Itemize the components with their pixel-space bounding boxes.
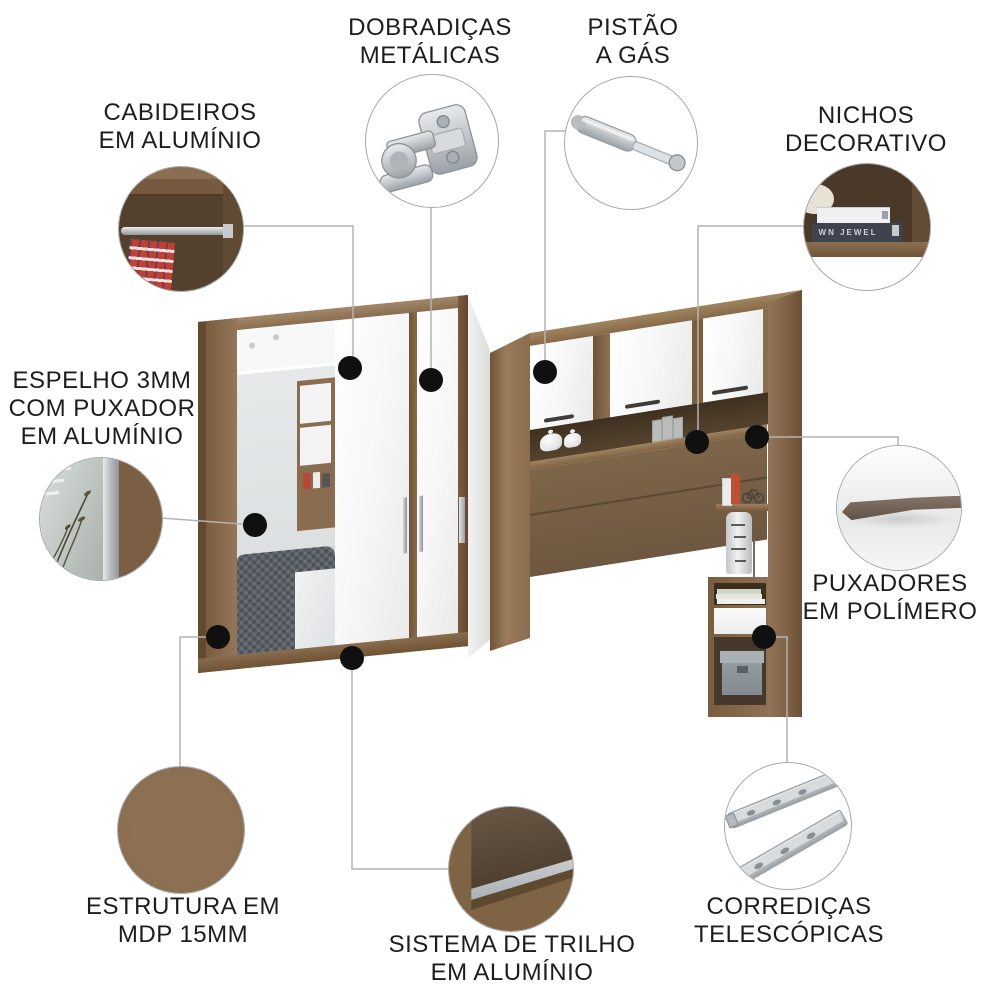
puxadores-circle: [836, 445, 962, 571]
white-book: [817, 207, 890, 224]
aluminum-door-handle: [419, 496, 423, 552]
white-hinged-door-right: [417, 308, 458, 637]
reflected-shelf-item: [303, 473, 311, 490]
book-label: [882, 211, 888, 219]
gas-piston-image: [565, 77, 697, 209]
label-line: COM PUXADOR: [0, 395, 204, 423]
cabideiros-circle: [118, 166, 244, 292]
decorative-niche-image: WN JEWEL: [804, 164, 930, 290]
dobradicas-circle: [365, 74, 499, 208]
label-pistao: PISTÃO A GÁS: [533, 14, 733, 70]
plaid-garment: [126, 240, 175, 292]
callout-point-cabideiros: [338, 356, 362, 380]
label-line: METÁLICAS: [310, 42, 550, 70]
sistema-circle: [448, 806, 574, 932]
label-espelho: ESPELHO 3MM COM PUXADOR EM ALUMÍNIO: [0, 367, 204, 451]
label-line: PUXADORES: [780, 570, 1000, 598]
door-wood-edge: [119, 458, 162, 580]
callout-point-pistao: [533, 360, 557, 384]
corner-post: [490, 333, 530, 651]
label-line: SISTEMA DE TRILHO: [377, 931, 647, 959]
label-line: NICHOS: [746, 102, 986, 130]
aluminum-hanging-rod-image: [119, 167, 243, 291]
telescopic-slides-image: [725, 763, 851, 889]
label-line: CORREDIÇAS: [669, 893, 909, 921]
glass-cup: [673, 417, 683, 440]
canister-stripe: [734, 536, 746, 538]
canister-stripe: [735, 560, 746, 562]
wardrobe-front-section: [198, 295, 468, 673]
corner-door: [468, 296, 490, 658]
storage-box: [722, 651, 762, 695]
callout-point-nichos: [685, 430, 709, 454]
bicycle-figurine: [741, 481, 765, 505]
nichos-circle: WN JEWEL: [803, 163, 931, 291]
label-line: EM POLÍMERO: [780, 598, 1000, 626]
corredicas-circle: [724, 762, 852, 890]
aluminum-track-image: [449, 807, 573, 931]
label-puxadores: PUXADORES EM POLÍMERO: [780, 570, 1000, 626]
metal-hinge-image: [366, 75, 498, 207]
espelho-circle: [39, 457, 163, 581]
dark-book: WN JEWEL: [812, 223, 903, 242]
reflected-shelf-item: [322, 473, 330, 488]
aluminum-handle-strip: [103, 458, 119, 580]
book-label: [892, 225, 899, 236]
book-spine-text: WN JEWEL: [812, 228, 878, 237]
tower-open-niche: [714, 583, 766, 605]
label-line: ESPELHO 3MM: [0, 367, 204, 395]
callout-point-sistema: [340, 646, 364, 670]
label-line: TELESCÓPICAS: [669, 921, 909, 949]
storage-box-lid: [720, 651, 764, 663]
label-cabideiros: CABIDEIROS EM ALUMÍNIO: [60, 99, 300, 155]
reflected-shelf-item: [313, 472, 320, 489]
storage-box-latch: [737, 666, 748, 673]
connector-sistema: [352, 658, 448, 869]
wardrobe-left-stile: [206, 318, 237, 672]
vignette: [118, 767, 244, 893]
label-estrutura: ESTRUTURA EM MDP 15MM: [63, 893, 303, 949]
label-line: EM ALUMÍNIO: [377, 959, 647, 987]
glass-cup: [662, 415, 673, 441]
estrutura-circle: [117, 766, 245, 894]
label-line: CABIDEIROS: [60, 99, 300, 127]
wardrobe-features-infographic: WN JEWEL: [0, 0, 1000, 1000]
polymer-handle-image: [837, 446, 961, 570]
mirror-surface: [40, 458, 103, 580]
label-corredicas: CORREDIÇAS TELESCÓPICAS: [669, 893, 909, 949]
label-nichos: NICHOS DECORATIVO: [746, 102, 986, 158]
aluminum-rod: [121, 227, 225, 236]
label-line: PISTÃO: [533, 14, 733, 42]
label-line: DECORATIVO: [746, 130, 986, 158]
reflected-white-door: [300, 425, 331, 466]
red-book: [731, 474, 740, 504]
callout-point-dobradicas: [419, 368, 443, 392]
label-line: ESTRUTURA EM: [63, 893, 303, 921]
canister: [726, 512, 752, 574]
niche-shelf: [804, 242, 930, 257]
door-divider: [409, 312, 417, 638]
reflected-white-door: [300, 383, 331, 424]
label-line: MDP 15MM: [63, 921, 303, 949]
glass-cup: [652, 419, 662, 443]
callout-point-puxadores: [745, 425, 769, 449]
label-line: EM ALUMÍNIO: [60, 127, 300, 155]
pistao-circle: [564, 76, 698, 210]
rod-bracket: [223, 224, 233, 238]
mdp-wood-texture-image: [118, 767, 244, 893]
callout-point-estrutura: [206, 625, 230, 649]
wire-stand: [753, 540, 755, 582]
label-line: A GÁS: [533, 42, 733, 70]
canister-stripe: [731, 548, 746, 550]
label-dobradicas: DOBRADIÇAS METÁLICAS: [310, 14, 550, 70]
callout-point-corredicas: [752, 625, 776, 649]
mirror-door: [237, 320, 335, 655]
label-line: EM ALUMÍNIO: [0, 423, 204, 451]
hutch-divider: [692, 319, 703, 405]
aluminum-door-handle: [403, 497, 407, 553]
label-line: DOBRADIÇAS: [310, 14, 550, 42]
mirror-reflection-cabinet: [297, 377, 335, 531]
canister-stripe: [731, 524, 745, 526]
closet-top: [119, 167, 243, 179]
folded-linen: [717, 599, 765, 604]
mirror-reflection-sheet: [295, 568, 335, 649]
plant-reflection: [40, 458, 103, 580]
wardrobe-right-stile: [458, 295, 468, 647]
callout-point-espelho: [243, 513, 267, 537]
corner-door-handle: [459, 497, 465, 543]
mirror-handle-image: [40, 458, 162, 580]
label-sistema: SISTEMA DE TRILHO EM ALUMÍNIO: [377, 931, 647, 987]
niche-side-panel: [912, 164, 930, 250]
right-end-panel: [768, 290, 802, 717]
